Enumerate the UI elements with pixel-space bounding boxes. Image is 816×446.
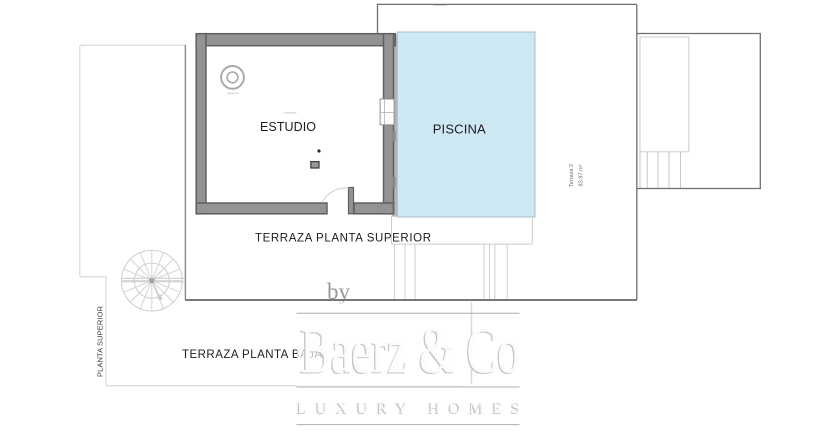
svg-text:PISCINA: PISCINA — [433, 122, 486, 137]
svg-text:TERRAZA PLANTA SUPERIOR: TERRAZA PLANTA SUPERIOR — [255, 233, 431, 245]
svg-text:Baerz & Co: Baerz & Co — [300, 314, 520, 387]
svg-text:83.97 m²: 83.97 m² — [579, 164, 585, 186]
svg-text:Terraza 2: Terraza 2 — [569, 164, 575, 187]
svg-text:PLANTA SUPERIOR: PLANTA SUPERIOR — [95, 305, 104, 377]
svg-text:ESTUDIO: ESTUDIO — [260, 120, 316, 134]
